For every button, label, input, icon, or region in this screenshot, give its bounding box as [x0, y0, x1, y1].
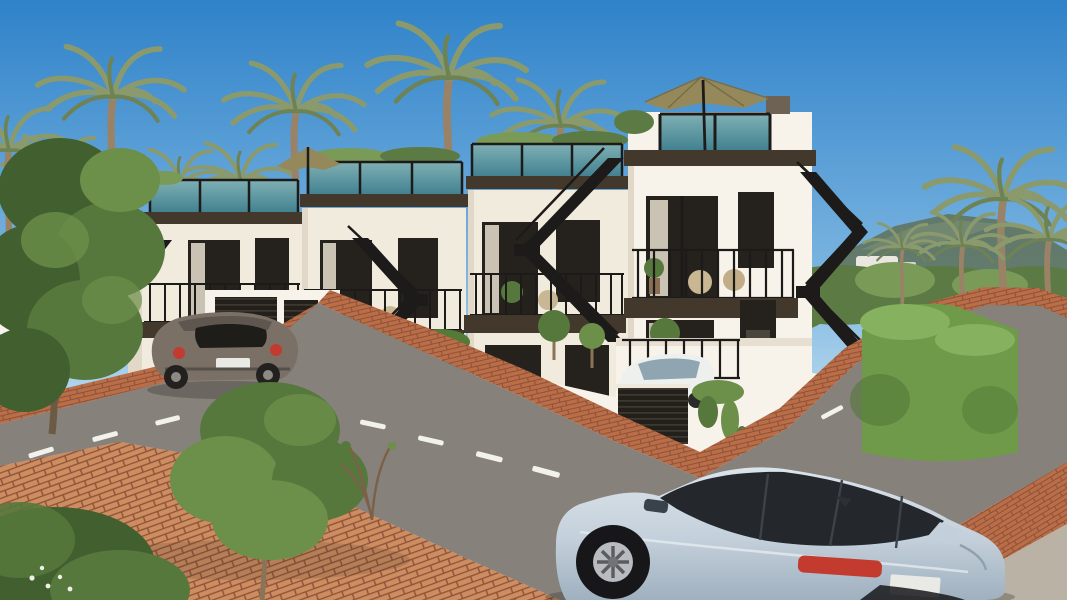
fascia-band	[466, 176, 632, 189]
render-image: New-build terraced houses street view – …	[0, 0, 1067, 600]
street-scene: New-build terraced houses street view – …	[0, 0, 1067, 600]
fascia-band	[624, 150, 816, 166]
fascia-band	[140, 212, 302, 224]
fascia-band	[300, 194, 468, 207]
hedge-right	[850, 304, 1018, 461]
gate-rail	[616, 384, 690, 388]
roof-terrace-glass	[308, 147, 462, 196]
